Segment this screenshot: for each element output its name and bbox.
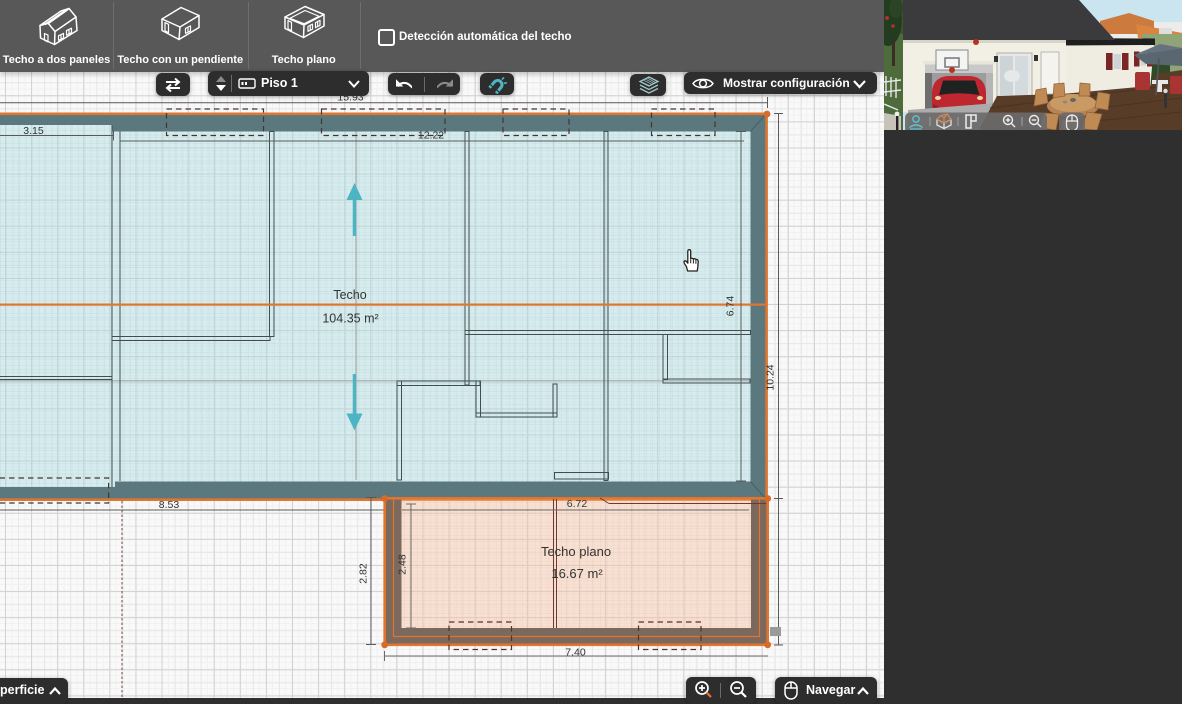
svg-text:6.74: 6.74 xyxy=(725,296,737,317)
svg-text:6.72: 6.72 xyxy=(567,498,588,510)
svg-text:8.53: 8.53 xyxy=(159,499,180,511)
svg-text:7.40: 7.40 xyxy=(565,647,586,659)
svg-text:16.67 m²: 16.67 m² xyxy=(551,566,603,581)
svg-text:Techo plano: Techo plano xyxy=(541,544,611,559)
svg-text:Techo: Techo xyxy=(333,288,366,302)
svg-text:10.24: 10.24 xyxy=(765,364,777,390)
svg-text:12.22: 12.22 xyxy=(418,130,444,142)
svg-text:2.48: 2.48 xyxy=(397,554,409,575)
svg-text:3.15: 3.15 xyxy=(23,125,44,137)
svg-text:104.35 m²: 104.35 m² xyxy=(322,312,378,326)
svg-text:2.82: 2.82 xyxy=(358,563,370,584)
